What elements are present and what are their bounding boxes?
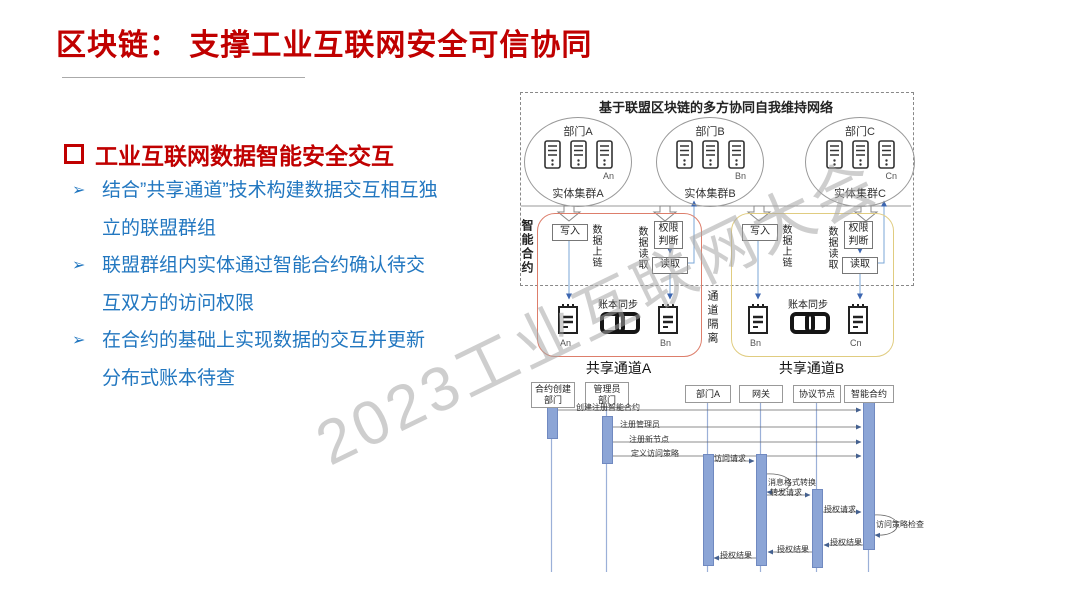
- server-icon-row: [657, 140, 763, 169]
- activation-bar: [756, 454, 767, 566]
- ledger-label: Cn: [850, 338, 862, 348]
- ledger-icon: [556, 302, 580, 341]
- node-label: Bn: [735, 171, 746, 181]
- write-box: 写入: [552, 224, 588, 241]
- message-label: 访问策略检查: [876, 519, 924, 530]
- actor-protocol-node: 协议节点: [793, 385, 841, 403]
- server-icon: [570, 140, 587, 169]
- dept-label: 部门B: [657, 123, 763, 139]
- message-label: 授权结果: [830, 537, 862, 548]
- message-label: 注册新节点: [629, 434, 669, 445]
- permission-check-box: 权限判断: [844, 221, 873, 249]
- chain-link-icon: [790, 310, 832, 336]
- ledger-sync-label: 账本同步: [598, 296, 638, 311]
- actor-contract-creator-dept: 合约创建 部门: [531, 382, 575, 408]
- server-icon-row: [525, 140, 631, 169]
- message-label: 创建注册智能合约: [576, 402, 640, 413]
- data-upchain-label: 数据上链: [778, 224, 793, 282]
- actor-label: 协议节点: [794, 389, 840, 400]
- data-upchain-label: 数据上链: [588, 224, 603, 282]
- arrow-bullet-icon: ➢: [72, 172, 85, 210]
- actor-label: 网关: [740, 389, 782, 400]
- activation-bar: [812, 489, 823, 568]
- diagram-title: 基于联盟区块链的多方协同自我维持网络: [520, 97, 912, 116]
- server-icon: [728, 140, 745, 169]
- server-icon: [878, 140, 895, 169]
- ledger-icon: [846, 302, 870, 341]
- channel-isolation-label: 通道隔离: [704, 290, 720, 346]
- entity-cluster-b: 部门B Bn 实体集群B: [656, 117, 764, 207]
- data-read-label: 数据读取: [634, 226, 649, 284]
- section-heading-text: 工业互联网数据智能安全交互: [95, 137, 394, 171]
- bullet-text: 结合”共享通道”技术构建数据交互相互独立的联盟群组: [102, 180, 438, 239]
- actor-label: 部门: [532, 395, 574, 406]
- activation-bar: [863, 402, 875, 550]
- activation-bar: [602, 416, 613, 464]
- server-icon: [702, 140, 719, 169]
- list-item: ➢ 在合约的基础上实现数据的交互并更新分布式账本待查: [72, 322, 442, 397]
- page-title: 区块链： 支撑工业互联网安全可信协同: [56, 20, 592, 64]
- ledger-label: An: [560, 338, 571, 348]
- node-label: An: [603, 171, 614, 181]
- bullet-list: ➢ 结合”共享通道”技术构建数据交互相互独立的联盟群组 ➢ 联盟群组内实体通过智…: [72, 172, 472, 397]
- node-label: Cn: [885, 171, 897, 181]
- bullet-text: 联盟群组内实体通过智能合约确认待交互双方的访问权限: [102, 255, 425, 314]
- entity-cluster-a: 部门A An 实体集群A: [524, 117, 632, 207]
- arrow-bullet-icon: ➢: [72, 247, 85, 285]
- message-label: 授权结果: [720, 550, 752, 561]
- server-icon: [852, 140, 869, 169]
- channel-a-name: 共享通道A: [537, 358, 700, 378]
- slide-canvas: 区块链： 支撑工业互联网安全可信协同 工业互联网数据智能安全交互 ➢ 结合”共享…: [0, 0, 1080, 607]
- hollow-square-icon: [64, 144, 84, 164]
- actor-label: 管理员: [586, 384, 628, 395]
- actor-label: 合约创建: [532, 384, 574, 395]
- ledger-icon: [656, 302, 680, 341]
- chain-link-icon: [600, 310, 642, 336]
- cluster-label: 实体集群B: [657, 185, 763, 201]
- actor-label: 部门A: [686, 389, 730, 400]
- list-item: ➢ 结合”共享通道”技术构建数据交互相互独立的联盟群组: [72, 172, 442, 247]
- dept-label: 部门C: [806, 123, 914, 139]
- actor-gateway: 网关: [739, 385, 783, 403]
- message-label: 注册管理员: [620, 419, 660, 430]
- arrow-bullet-icon: ➢: [72, 322, 85, 360]
- dept-label: 部门A: [525, 123, 631, 139]
- read-box: 读取: [842, 257, 878, 274]
- server-icon-row: [806, 140, 914, 169]
- message-label: 定义访问策略: [631, 448, 679, 459]
- title-underline: [62, 77, 305, 78]
- server-icon: [676, 140, 693, 169]
- activation-bar: [703, 454, 714, 566]
- data-read-label: 数据读取: [824, 226, 839, 284]
- permission-check-box: 权限判断: [654, 221, 683, 249]
- server-icon: [826, 140, 843, 169]
- message-label: 访问请求: [714, 453, 746, 464]
- message-label: 授权结果: [777, 544, 809, 555]
- smart-contract-band-label: 智能合约: [519, 219, 536, 275]
- entity-cluster-c: 部门C Cn 实体集群C: [805, 117, 915, 207]
- ledger-label: Bn: [660, 338, 671, 348]
- actor-dept-a: 部门A: [685, 385, 731, 403]
- server-icon: [596, 140, 613, 169]
- message-label: 授权请求: [824, 504, 856, 515]
- ledger-icon: [746, 302, 770, 341]
- channel-b-name: 共享通道B: [731, 358, 892, 378]
- ledger-sync-label: 账本同步: [788, 296, 828, 311]
- server-icon: [544, 140, 561, 169]
- ledger-label: Bn: [750, 338, 761, 348]
- message-label: 转发请求: [770, 487, 802, 498]
- activation-bar: [547, 404, 558, 439]
- list-item: ➢ 联盟群组内实体通过智能合约确认待交互双方的访问权限: [72, 247, 442, 322]
- bullet-text: 在合约的基础上实现数据的交互并更新分布式账本待查: [102, 330, 425, 389]
- cluster-label: 实体集群A: [525, 185, 631, 201]
- actor-smart-contract: 智能合约: [844, 385, 894, 403]
- actor-label: 智能合约: [845, 389, 893, 400]
- read-box: 读取: [652, 257, 688, 274]
- cluster-label: 实体集群C: [806, 185, 914, 201]
- section-heading: 工业互联网数据智能安全交互: [64, 137, 394, 171]
- write-box: 写入: [742, 224, 778, 241]
